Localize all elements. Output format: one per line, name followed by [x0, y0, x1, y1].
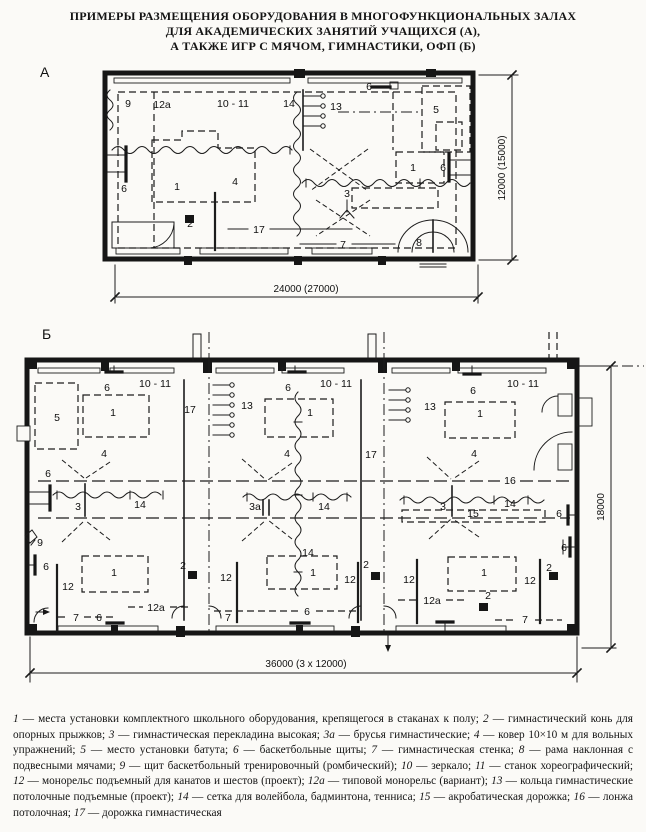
equipment-label: 17 [184, 404, 196, 416]
equipment-label: 6 [43, 561, 49, 573]
legend-item: 15 — акробатическая дорожка; [419, 791, 573, 803]
equipment-label: 12 [524, 575, 536, 587]
legend-item-number: 6 [233, 744, 239, 756]
equipment-label: 2 [180, 560, 186, 572]
equipment-label: 6 [104, 382, 110, 394]
legend-item: 12 — монорельс подъемный для канатов и ш… [13, 775, 308, 787]
legend-item: 6 — баскетбольные щиты; [233, 744, 371, 756]
equipment-label: 6 [440, 162, 446, 174]
legend-item-number: 17 [74, 807, 85, 819]
equipment-label: 7 [340, 239, 346, 251]
equipment-label: 10 - 11 [217, 98, 249, 110]
plan-a-labels: 912a10 - 1114136561431621778 [121, 81, 446, 251]
equipment-label: 6 [45, 468, 51, 480]
legend-item-number: 5 [80, 744, 86, 756]
equipment-label: 6 [366, 81, 372, 93]
equipment-label: 1 [110, 407, 116, 419]
equipment-label: 10 - 11 [507, 378, 539, 390]
equipment-label: 1 [111, 567, 117, 579]
equipment-label: 2 [187, 218, 193, 230]
monorail-post-symbols [57, 560, 540, 631]
rhombic-shield-symbol [107, 90, 113, 130]
equipment-label: 7 [522, 614, 528, 626]
legend-item-number: 1 [13, 713, 19, 725]
equipment-label: 1 [481, 567, 487, 579]
equipment-label: 12a [423, 595, 441, 607]
equipment-label: 1 [410, 162, 416, 174]
equipment-label: 5 [433, 104, 439, 116]
equipment-label: 3 [75, 501, 81, 513]
equipment-label: 1 [307, 407, 313, 419]
equipment-label: 13 [330, 101, 342, 113]
document-page: ПРИМЕРЫ РАЗМЕЩЕНИЯ ОБОРУДОВАНИЯ В МНОГОФ… [0, 0, 646, 832]
legend-item: 11 — станок хореографический; [475, 760, 633, 772]
legend-item-number: 13 [491, 775, 502, 787]
legend-item: 17 — дорожка гимнастическая [74, 807, 222, 819]
legend-item-number: 12 [13, 775, 24, 787]
equipment-label: 12a [153, 99, 171, 111]
equipment-label: 2 [363, 559, 369, 571]
equipment-label: 12a [147, 602, 165, 614]
legend-text: 1 — места установки комплектного школьно… [13, 712, 633, 821]
equipment-label: 3 [440, 501, 446, 513]
equipment-label: 10 - 11 [139, 378, 171, 390]
legend-item: 12а — типовой монорельс (вариант); [308, 775, 491, 787]
equipment-label: 1 [310, 567, 316, 579]
equipment-label: 17 [253, 224, 265, 236]
equipment-label: 6 [96, 612, 102, 624]
equipment-label: 6 [470, 385, 476, 397]
equipment-label: 7 [73, 612, 79, 624]
plan-b-drawing: Б [17, 326, 644, 682]
parallel-bars-symbol [263, 500, 269, 515]
equipment-label: 13 [424, 401, 436, 413]
legend-item-number: 3 [109, 729, 115, 741]
plan-b-width-dimension: 36000 (3 x 12000) [265, 659, 346, 670]
plan-b-letter: Б [42, 326, 51, 342]
equipment-label: 3 [344, 188, 350, 200]
floor-plans-figure: А [0, 0, 646, 832]
equipment-label: 5 [54, 412, 60, 424]
legend-item-number: 10 [401, 760, 412, 772]
equipment-label: 2 [485, 590, 491, 602]
legend-item: 9 — щит баскетбольный тренировочный (ром… [120, 760, 401, 772]
legend-item: 7 — гимнастическая стенка; [371, 744, 518, 756]
equipment-label: 17 [365, 449, 377, 461]
legend-item-number: 16 [574, 791, 585, 803]
equipment-label: 14 [283, 98, 295, 110]
floor-socket-symbol [479, 603, 488, 611]
equipment-label: 13 [241, 400, 253, 412]
legend-item-number: 3а [324, 729, 335, 741]
equipment-label: 14 [302, 547, 314, 559]
plan-b-equipment [25, 366, 576, 632]
floor-socket-symbol [188, 571, 197, 579]
equipment-label: 9 [125, 98, 131, 110]
equipment-label: 9 [37, 537, 43, 549]
legend: 1 — места установки комплектного школьно… [13, 712, 633, 821]
equipment-label: 12 [220, 572, 232, 584]
equipment-label: 2 [546, 562, 552, 574]
plan-a-drawing: А [40, 64, 518, 303]
equipment-label: 4 [471, 448, 477, 460]
equipment-label: 6 [304, 606, 310, 618]
plan-a-height-dimension: 12000 (15000) [497, 135, 508, 200]
equipment-label: 14 [504, 498, 516, 510]
equipment-label: 8 [416, 237, 422, 249]
legend-item-number: 2 [483, 713, 489, 725]
plan-b-partitions [172, 362, 396, 652]
equipment-label: 3а [249, 501, 261, 513]
legend-item: 14 — сетка для волейбола, бадминтона, те… [177, 791, 419, 803]
equipment-label: 12 [403, 574, 415, 586]
plan-a-width-dimension: 24000 (27000) [273, 284, 338, 295]
equipment-label: 14 [134, 499, 146, 511]
equipment-label: 4 [232, 176, 238, 188]
equipment-label: 4 [101, 448, 107, 460]
plan-a-letter: А [40, 64, 50, 80]
legend-item-number: 11 [475, 760, 485, 772]
equipment-label: 6 [556, 508, 562, 520]
equipment-label: 15 [467, 508, 479, 520]
equipment-label: 4 [284, 448, 290, 460]
legend-item: 5 — место установки батута; [80, 744, 233, 756]
equipment-label: 6 [561, 542, 567, 554]
legend-item-number: 14 [177, 791, 188, 803]
legend-item-number: 7 [371, 744, 377, 756]
equipment-label: 12 [62, 581, 74, 593]
floor-socket-symbol [371, 572, 380, 580]
legend-item-number: 9 [120, 760, 126, 772]
equipment-label: 6 [285, 382, 291, 394]
equipment-label: 1 [174, 181, 180, 193]
equipment-label: 14 [318, 501, 330, 513]
equipment-label: 10 - 11 [320, 378, 352, 390]
legend-item: 10 — зеркало; [401, 760, 475, 772]
plan-b-height-dimension: 18000 [596, 493, 607, 521]
equipment-label: 6 [121, 183, 127, 195]
equipment-label: 12 [344, 574, 356, 586]
legend-item: 3а — брусья гимнастические; [324, 729, 474, 741]
legend-item-number: 12а [308, 775, 325, 787]
legend-item: 3 — гимнастическая перекладина высокая; [109, 729, 324, 741]
equipment-label: 16 [504, 475, 516, 487]
legend-item-number: 8 [519, 744, 525, 756]
equipment-label: 1 [477, 408, 483, 420]
equipment-label: 7 [225, 612, 231, 624]
legend-item-number: 15 [419, 791, 430, 803]
legend-item: 1 — места установки комплектного школьно… [13, 713, 483, 725]
legend-item-number: 4 [474, 729, 480, 741]
